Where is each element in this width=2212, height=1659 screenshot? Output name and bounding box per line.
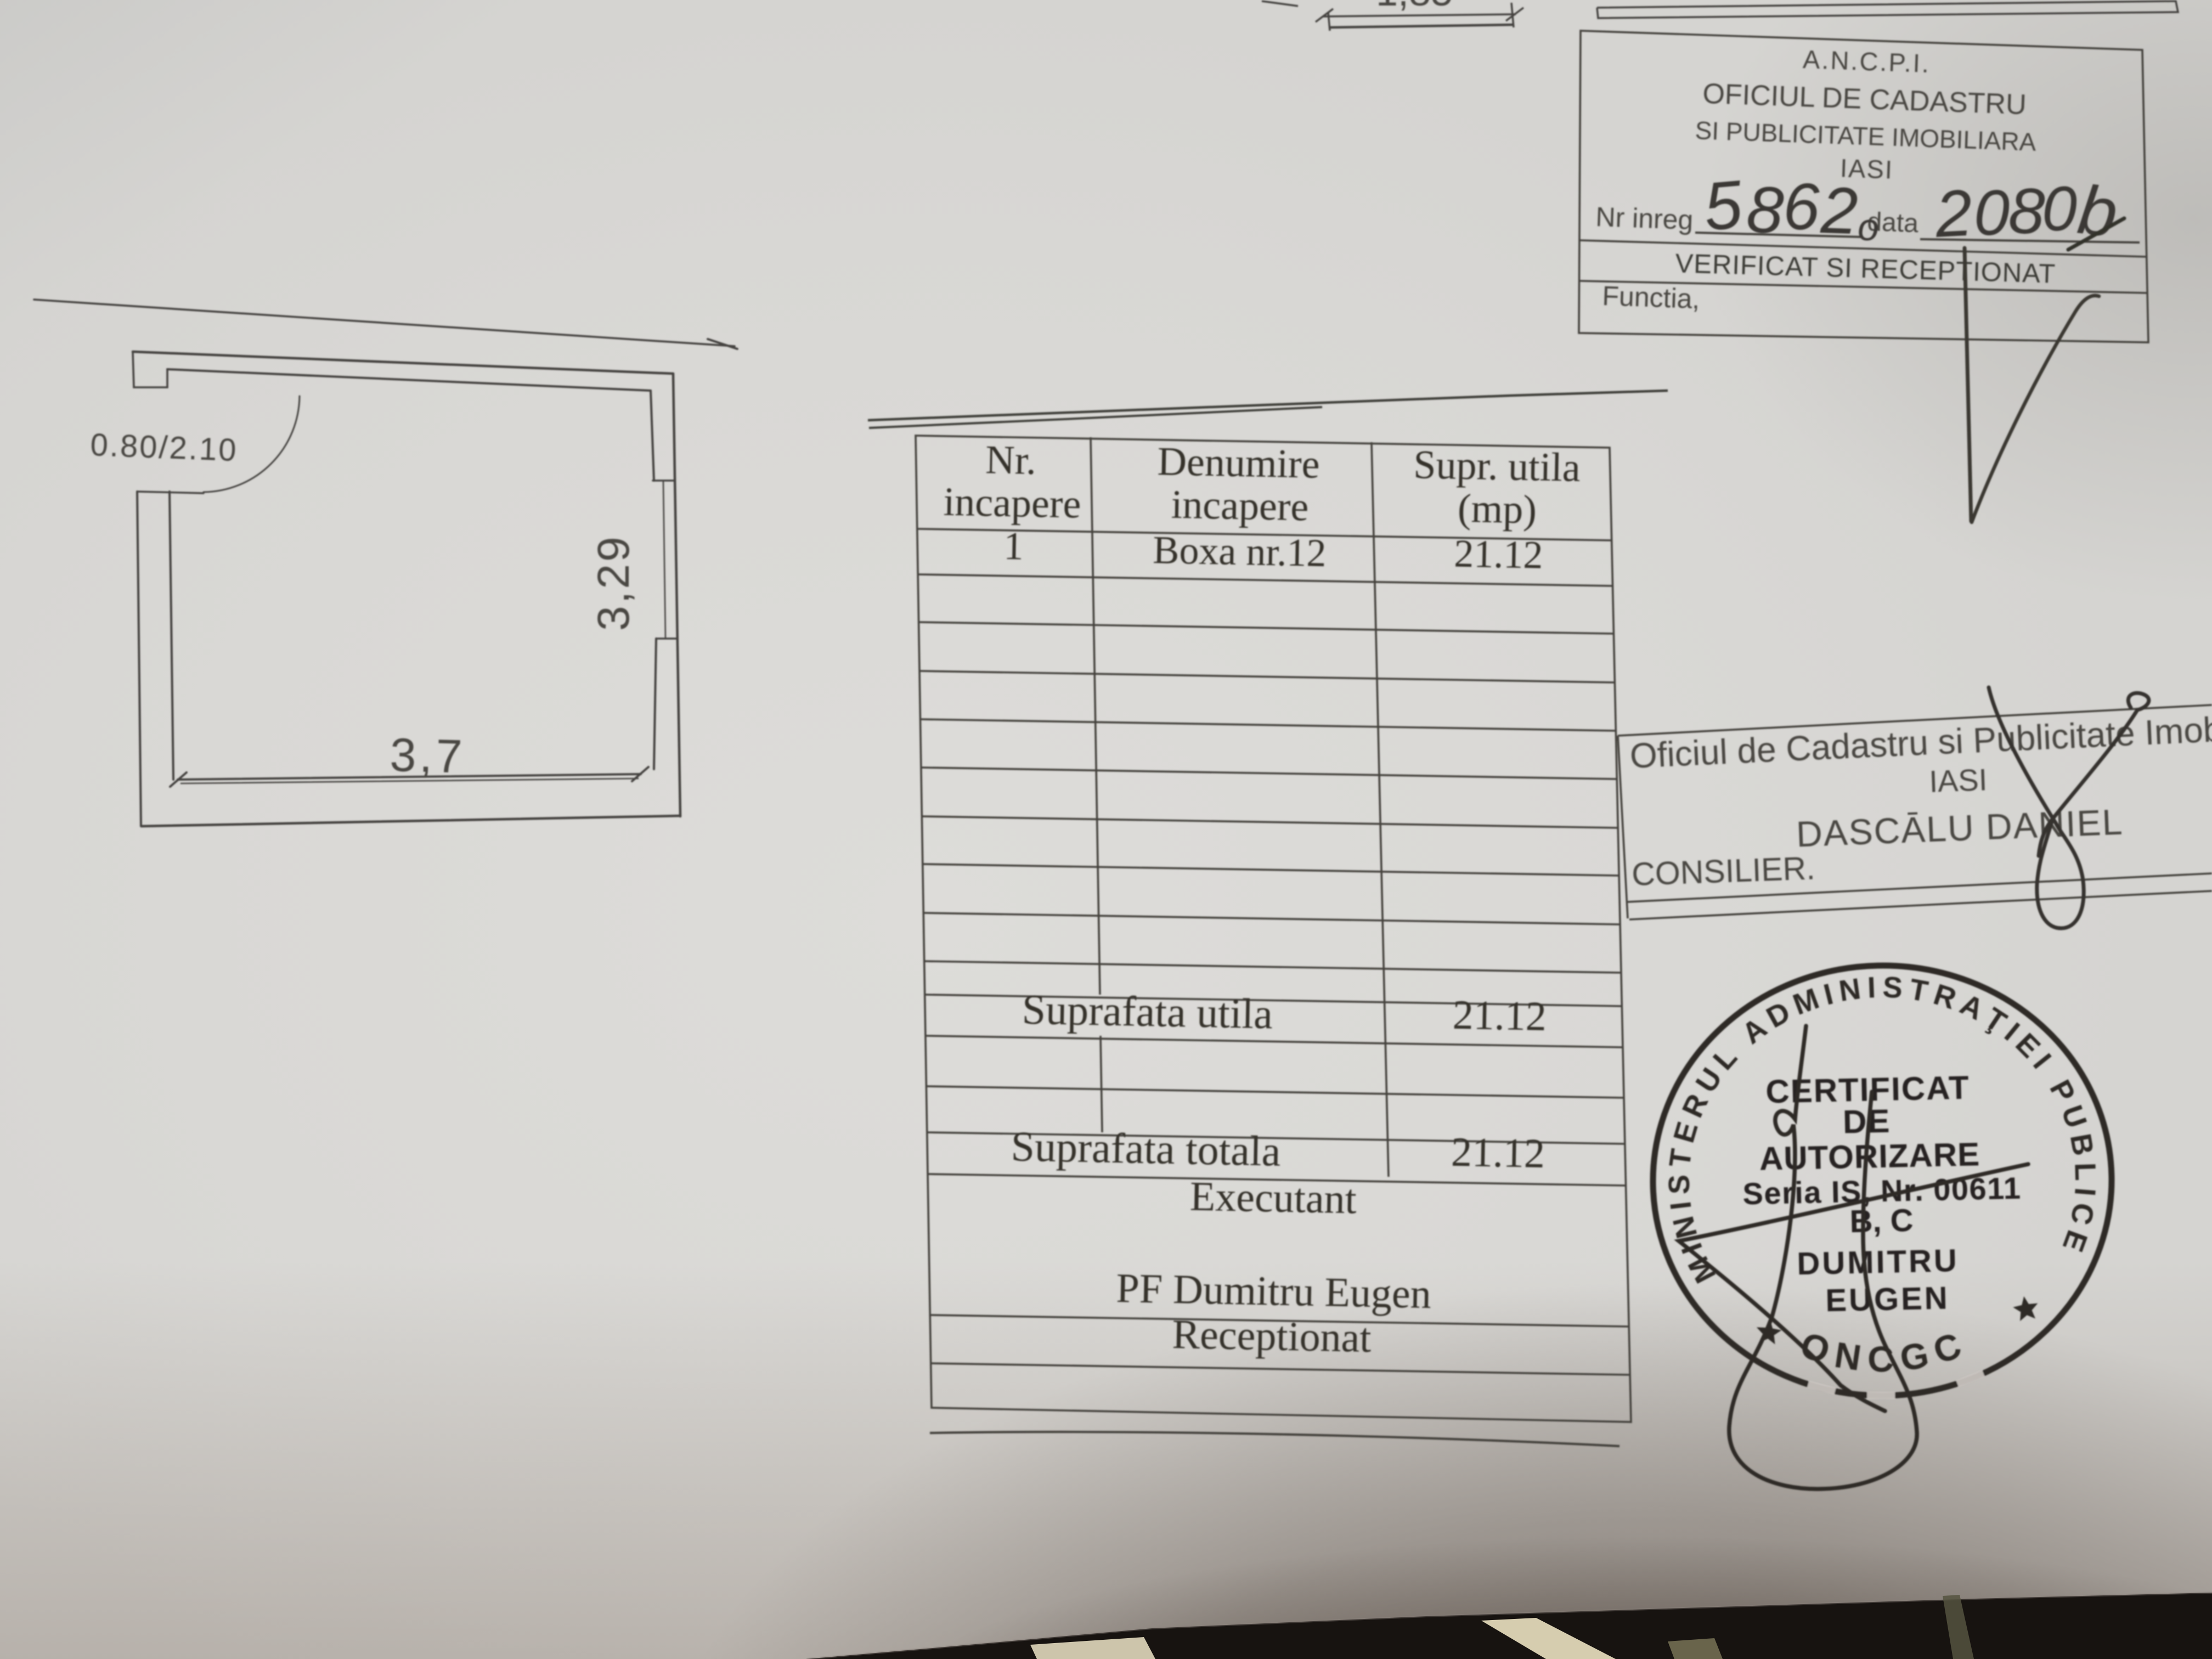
svg-text:AUTORIZARE: AUTORIZARE — [1759, 1136, 1980, 1177]
svg-text:(mp): (mp) — [1457, 486, 1537, 533]
svg-text:1,85: 1,85 — [1376, 0, 1453, 14]
svg-text:incapere: incapere — [1171, 482, 1309, 530]
svg-text:PF Dumitru Eugen: PF Dumitru Eugen — [1116, 1265, 1432, 1317]
svg-text:B, C: B, C — [1849, 1203, 1914, 1239]
svg-text:Executant: Executant — [1189, 1173, 1357, 1223]
svg-text:Suprafata totala: Suprafata totala — [1011, 1122, 1281, 1175]
svg-text:21.12: 21.12 — [1451, 1129, 1545, 1177]
svg-text:0.80/2.10: 0.80/2.10 — [90, 427, 239, 468]
svg-text:CONSILIER.: CONSILIER. — [1631, 850, 1816, 893]
svg-text:o: o — [1858, 206, 1879, 249]
svg-text:5: 5 — [1701, 166, 1746, 245]
svg-text:DUMITRU: DUMITRU — [1797, 1243, 1960, 1282]
svg-text:A.N.C.P.I.: A.N.C.P.I. — [1802, 44, 1931, 78]
svg-text:21.12: 21.12 — [1452, 992, 1547, 1040]
svg-text:Supr. utila: Supr. utila — [1413, 442, 1581, 490]
svg-text:6: 6 — [1783, 170, 1820, 244]
svg-text:Nr.: Nr. — [985, 437, 1037, 483]
svg-text:Nr inreg: Nr inreg — [1595, 201, 1694, 235]
svg-text:incapere: incapere — [943, 479, 1081, 527]
svg-text:Denumire: Denumire — [1157, 439, 1320, 487]
svg-text:1: 1 — [1003, 524, 1024, 568]
svg-text:0: 0 — [2042, 174, 2077, 244]
svg-text:IASI: IASI — [1928, 762, 1988, 799]
svg-text:0: 0 — [1974, 177, 2010, 249]
svg-text:Suprafata utila: Suprafata utila — [1022, 985, 1273, 1038]
svg-text:2: 2 — [1819, 173, 1859, 248]
svg-text:2: 2 — [1933, 176, 1974, 251]
svg-text:3,29: 3,29 — [589, 534, 639, 631]
svg-text:EUGEN: EUGEN — [1825, 1280, 1950, 1318]
svg-text:8: 8 — [1745, 172, 1786, 247]
svg-text:Functia,: Functia, — [1602, 280, 1701, 314]
svg-text:Receptionat: Receptionat — [1172, 1311, 1372, 1361]
svg-text:8: 8 — [2007, 174, 2046, 248]
svg-text:3,7: 3,7 — [390, 729, 466, 783]
svg-text:21.12: 21.12 — [1454, 532, 1544, 577]
svg-text:Boxa nr.12: Boxa nr.12 — [1153, 528, 1327, 575]
